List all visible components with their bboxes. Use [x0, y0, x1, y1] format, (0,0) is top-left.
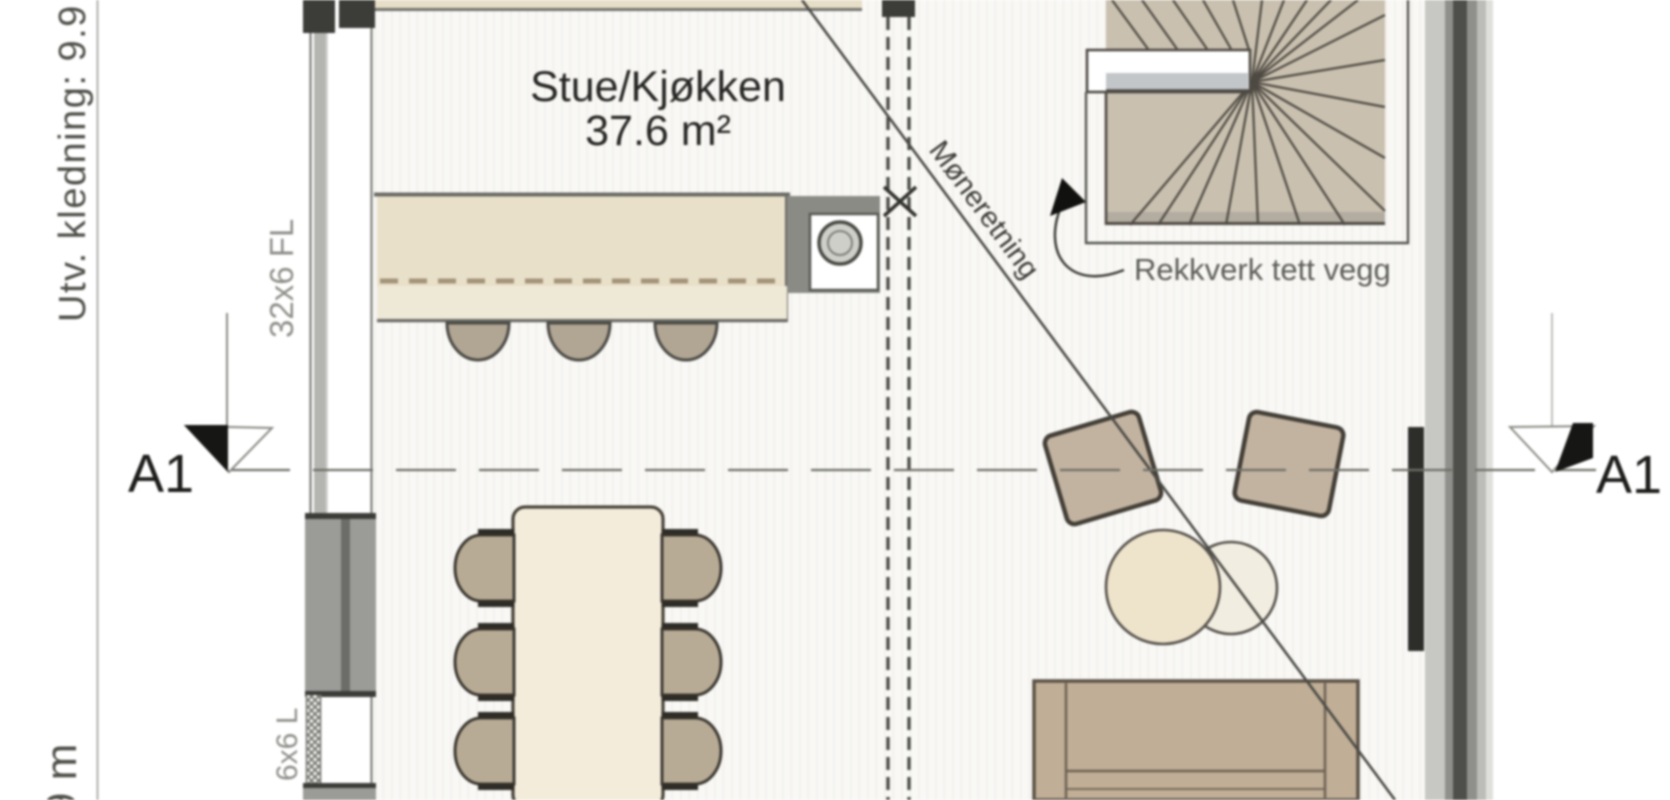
- svg-text:9 m: 9 m: [37, 744, 86, 800]
- svg-text:37.6 m²: 37.6 m²: [585, 107, 731, 155]
- svg-text:Rekkverk tett vegg: Rekkverk tett vegg: [1134, 252, 1391, 287]
- svg-text:Utv. kledning: 9.9: Utv. kledning: 9.9: [52, 4, 94, 322]
- svg-text:32x6 FL: 32x6 FL: [263, 219, 300, 338]
- svg-text:A1: A1: [1596, 445, 1662, 505]
- svg-text:A1: A1: [128, 444, 194, 504]
- svg-text:6x6 L: 6x6 L: [271, 708, 304, 781]
- svg-text:Stue/Kjøkken: Stue/Kjøkken: [530, 63, 786, 111]
